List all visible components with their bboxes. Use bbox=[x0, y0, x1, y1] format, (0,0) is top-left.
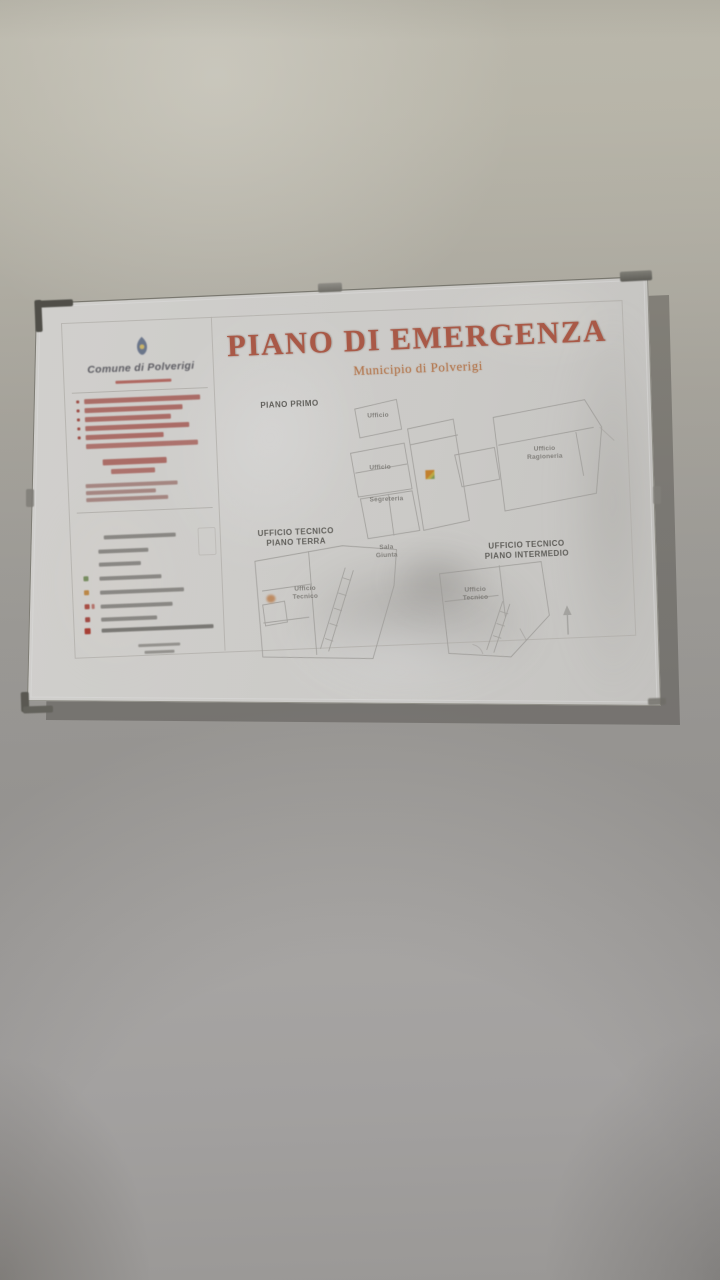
wall-vignette bbox=[0, 0, 720, 1280]
wall-photo: PIANO DI EMERGENZA Municipio di Polverig… bbox=[0, 0, 720, 1280]
